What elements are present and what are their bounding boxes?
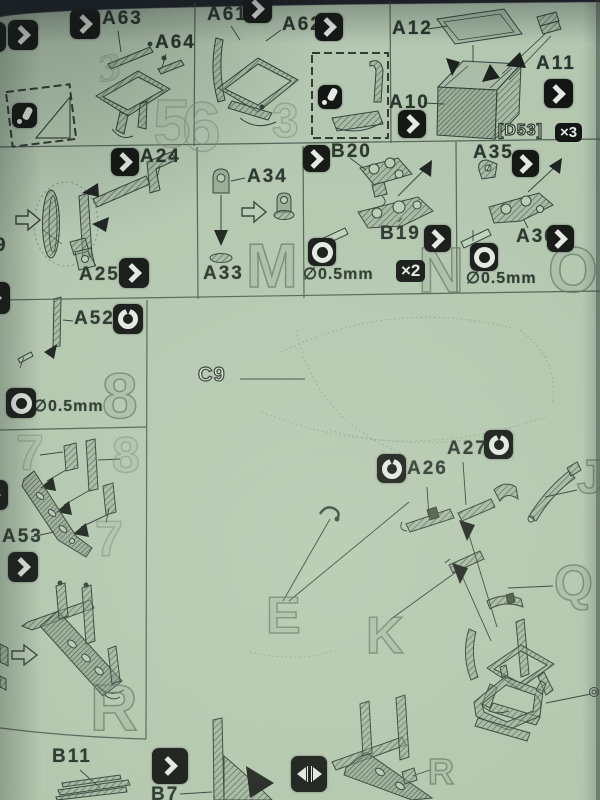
subassembly-letter-q: Q <box>554 558 593 608</box>
glue-badge-2 <box>318 85 342 109</box>
arrow-badge-partial <box>0 22 6 52</box>
chevron-right-icon <box>548 229 568 249</box>
arrow-badge-a61 <box>243 0 272 23</box>
chevron-right-icon <box>546 84 566 104</box>
qty-ghost-7a: 7 <box>16 428 44 478</box>
part-qty-ghost-3: 3 <box>272 98 299 146</box>
drill-size-label-o: ∅0.5mm <box>466 268 537 288</box>
subassembly-letter-r-small: R <box>428 754 454 790</box>
part-label-b7: B7 <box>151 784 179 800</box>
instruction-sheet-photo: A63 A64 A61 A62 A12 A11 A10 A24 A25 A34 … <box>0 0 600 800</box>
lamp-bracket-drawing <box>16 152 176 270</box>
part-label-a26: A26 <box>407 458 448 480</box>
chevron-right-icon <box>122 263 142 283</box>
arrow-badge-a11 <box>544 79 573 108</box>
part-label-a25: A25 <box>79 264 120 286</box>
strap-parts-drawing <box>283 462 581 641</box>
drill-badge-o <box>470 243 498 271</box>
subassembly-letter-k: K <box>366 610 404 662</box>
snap-ring-icon <box>489 435 509 455</box>
subassembly-letter-e: E <box>266 590 301 642</box>
arrow-badge <box>8 20 38 50</box>
part-label-c9: C9 <box>198 364 226 387</box>
chevron-right-icon <box>317 17 337 37</box>
sprue-ref-d53: [D53] <box>498 122 543 140</box>
arrow-badge-a53 <box>8 552 38 582</box>
part-label-a63: A63 <box>102 8 143 30</box>
arrow-badge-b7 <box>152 748 188 784</box>
part-label-a61: A61 <box>207 4 248 26</box>
part-label-a27: A27 <box>447 438 488 460</box>
drill-badge-n <box>308 238 336 266</box>
arrow-badge-edge-partial <box>0 282 10 314</box>
part-label-a24: A24 <box>140 146 181 168</box>
arrow-badge-edge-partial-2 <box>0 480 8 510</box>
quantity-badge-x2: ×2 <box>396 260 425 282</box>
ring-badge-a52 <box>113 304 143 334</box>
drill-hole-icon <box>474 247 495 268</box>
arrow-badge-a36 <box>547 225 574 252</box>
drill-badge-8 <box>6 388 36 418</box>
chevron-right-icon <box>513 154 533 174</box>
arrow-badge-b20 <box>303 145 330 172</box>
qty-ghost-7b: 7 <box>95 514 123 564</box>
part-label-a11: A11 <box>536 53 576 75</box>
part-label-a34: A34 <box>247 166 288 188</box>
arrow-badge-a24 <box>111 148 139 176</box>
chevron-right-icon <box>425 229 445 249</box>
part-label-a53: A53 <box>2 526 43 548</box>
snap-ring-icon <box>382 459 402 479</box>
panel-8-parts <box>18 297 73 368</box>
chevron-right-icon <box>0 288 1 308</box>
chevron-right-icon <box>11 25 31 45</box>
chevron-right-icon <box>245 0 265 18</box>
ring-badge-a26 <box>377 454 406 483</box>
arrow-badge-a35 <box>512 150 539 177</box>
drill-hole-icon <box>11 393 32 414</box>
mirror-parts-icon <box>297 766 322 782</box>
drill-size-label-8: ∅0.5mm <box>33 396 104 416</box>
drill-size-label-n: ∅0.5mm <box>303 264 374 284</box>
subassembly-letter-j: J <box>577 454 600 502</box>
qty-ghost-8: 8 <box>112 430 140 480</box>
part-label-a52: A52 <box>74 308 115 330</box>
drill-hole-icon <box>312 242 333 263</box>
snap-ring-icon <box>118 309 138 329</box>
arrow-badge-a10 <box>398 110 426 138</box>
part-label-b20: B20 <box>331 141 372 163</box>
quantity-badge-x3: ×3 <box>555 123 582 142</box>
glue-icon <box>321 88 339 106</box>
arrow-badge-a62 <box>315 13 343 41</box>
arrow-badge-a25 <box>119 258 149 288</box>
ring-badge-a27 <box>484 430 513 459</box>
step-number-6: 6 <box>182 92 221 162</box>
part-label-a33: A33 <box>203 263 244 285</box>
part-label-a64: A64 <box>155 32 196 54</box>
part-label-a35: A35 <box>473 142 514 164</box>
chevron-right-icon <box>113 152 133 172</box>
arrow-badge-b19 <box>424 225 451 252</box>
chevron-right-icon <box>304 149 324 169</box>
chevron-right-icon <box>400 114 420 134</box>
arrow-badge-a63 <box>70 9 100 39</box>
part-label-b11: B11 <box>52 746 92 768</box>
mirror-badge <box>291 756 327 792</box>
chevron-right-icon <box>11 557 31 577</box>
chevron-right-icon <box>158 756 178 776</box>
glue-badge-1 <box>12 103 37 128</box>
step-letter-m: M <box>246 236 298 298</box>
part-label-b19: B19 <box>380 223 421 245</box>
part-label-9-partial: 9 <box>0 235 8 257</box>
step-number-8: 8 <box>102 364 138 428</box>
part-label-a12: A12 <box>392 18 433 40</box>
chevron-right-icon <box>73 14 93 34</box>
subassembly-letter-r: R <box>90 674 138 740</box>
glue-icon <box>16 107 34 125</box>
